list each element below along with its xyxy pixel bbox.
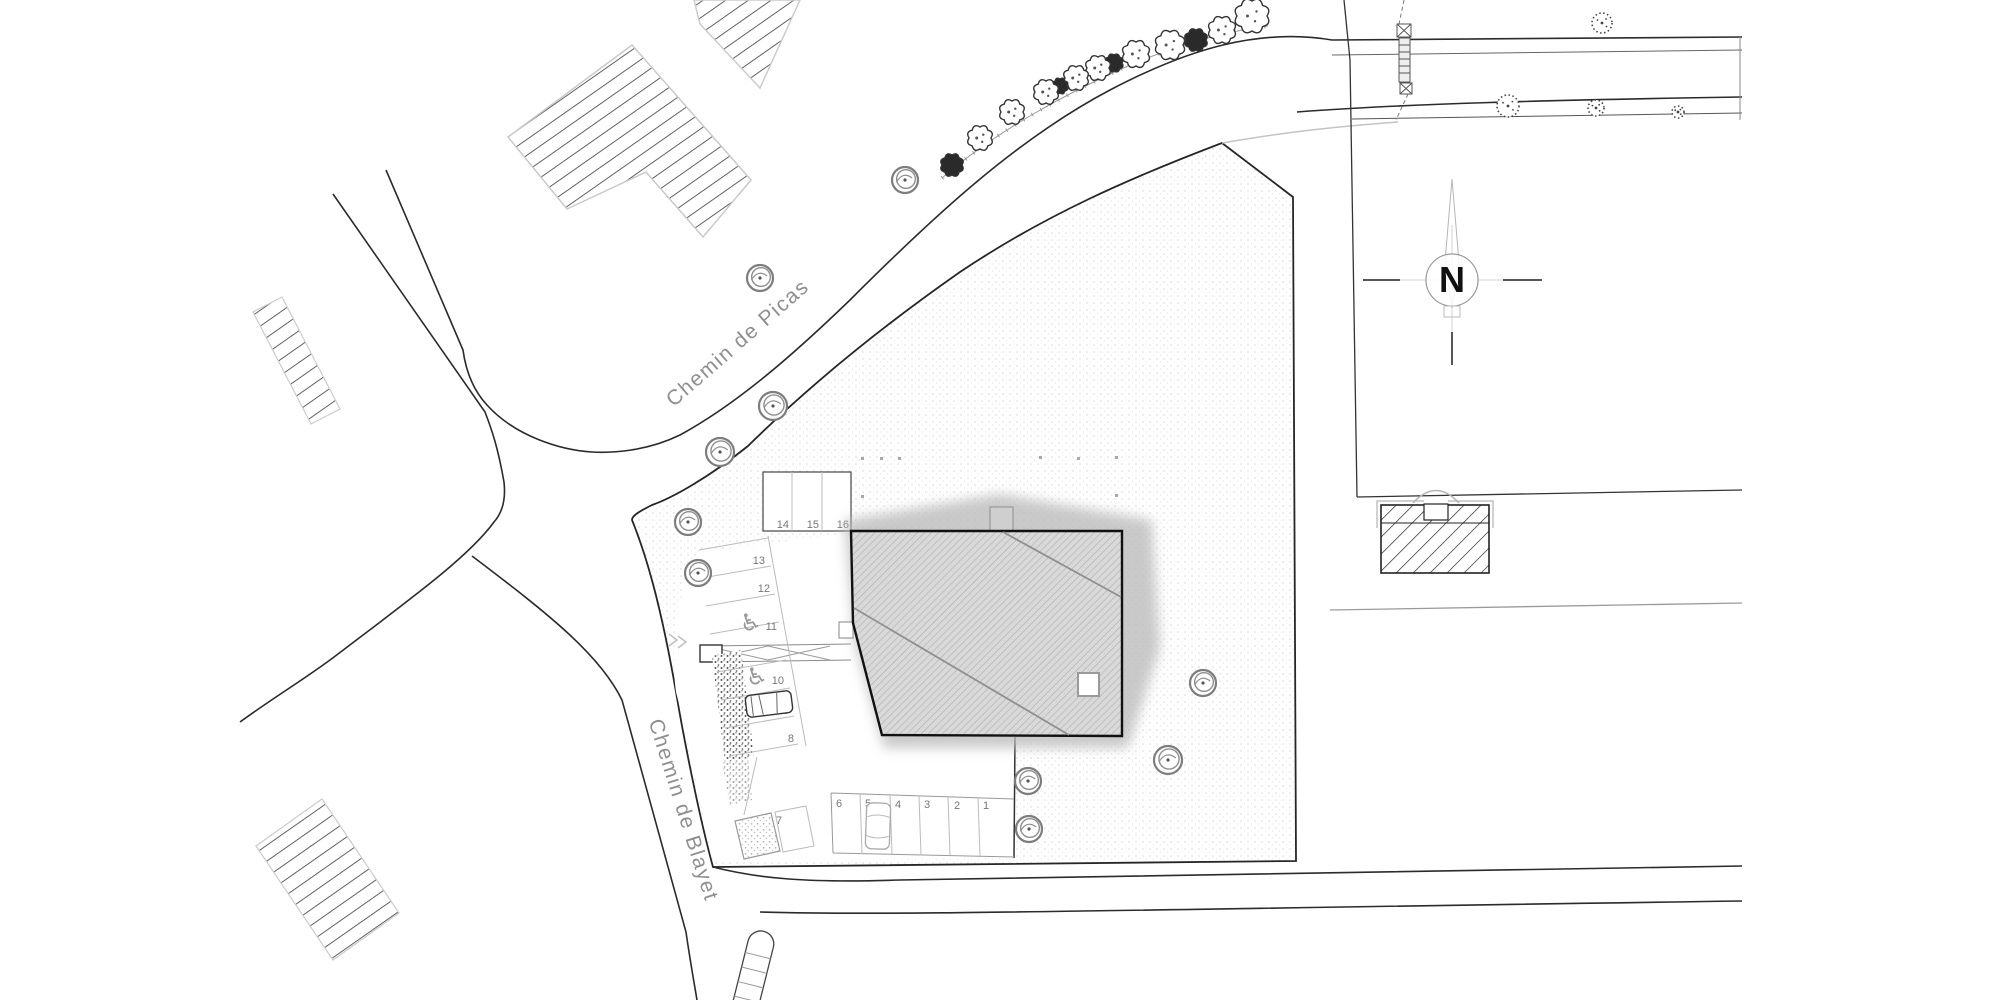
stall-number: 1 [983,800,989,812]
stall-number: 7 [776,815,782,827]
stall-number: 3 [924,799,930,811]
stall-number: 8 [788,733,794,745]
tree-icon [675,509,701,535]
north-label: N [1439,259,1465,300]
bush-icon [1672,106,1684,118]
stall-number: 4 [895,799,901,811]
building-annex [839,622,853,638]
tree-icon [747,265,773,291]
tree-icon [1154,746,1182,774]
parking-block-upper: 14 15 16 [763,472,851,531]
tree-icon [1015,768,1041,794]
tree-icon [892,167,918,193]
car-icon [745,690,793,717]
stall-number: 6 [836,798,842,810]
stall-number: 2 [954,800,960,812]
bush-icon [1592,13,1612,33]
stall-number: 14 [777,519,789,531]
building-roof [851,531,1122,736]
shed [735,813,780,859]
outbuilding-notch [1424,504,1448,520]
bush-icon [1497,95,1519,117]
stall-number: 15 [807,519,819,531]
bush-icon [1588,100,1604,116]
courtyard-east-edge [1014,737,1015,858]
tree-icon [685,560,711,586]
stall-number: 11 [766,621,777,633]
chimney [990,507,1013,533]
tree-icon [759,392,787,420]
stall-number: 10 [772,675,784,687]
site-plan: 14 15 16 13 12 11 10 9 8 7 ♿ ♿ 6 5 4 3 2… [0,0,2000,1000]
main-building [839,494,1160,748]
skylight [1078,673,1099,696]
site-plan-svg: 14 15 16 13 12 11 10 9 8 7 ♿ ♿ 6 5 4 3 2… [0,0,2000,1000]
stall-number: 12 [758,583,770,595]
stall-number: 13 [753,555,765,567]
tree-icon [706,438,734,466]
car-icon [865,803,891,850]
tree-icon [1016,816,1042,842]
tree-icon [1190,670,1216,696]
